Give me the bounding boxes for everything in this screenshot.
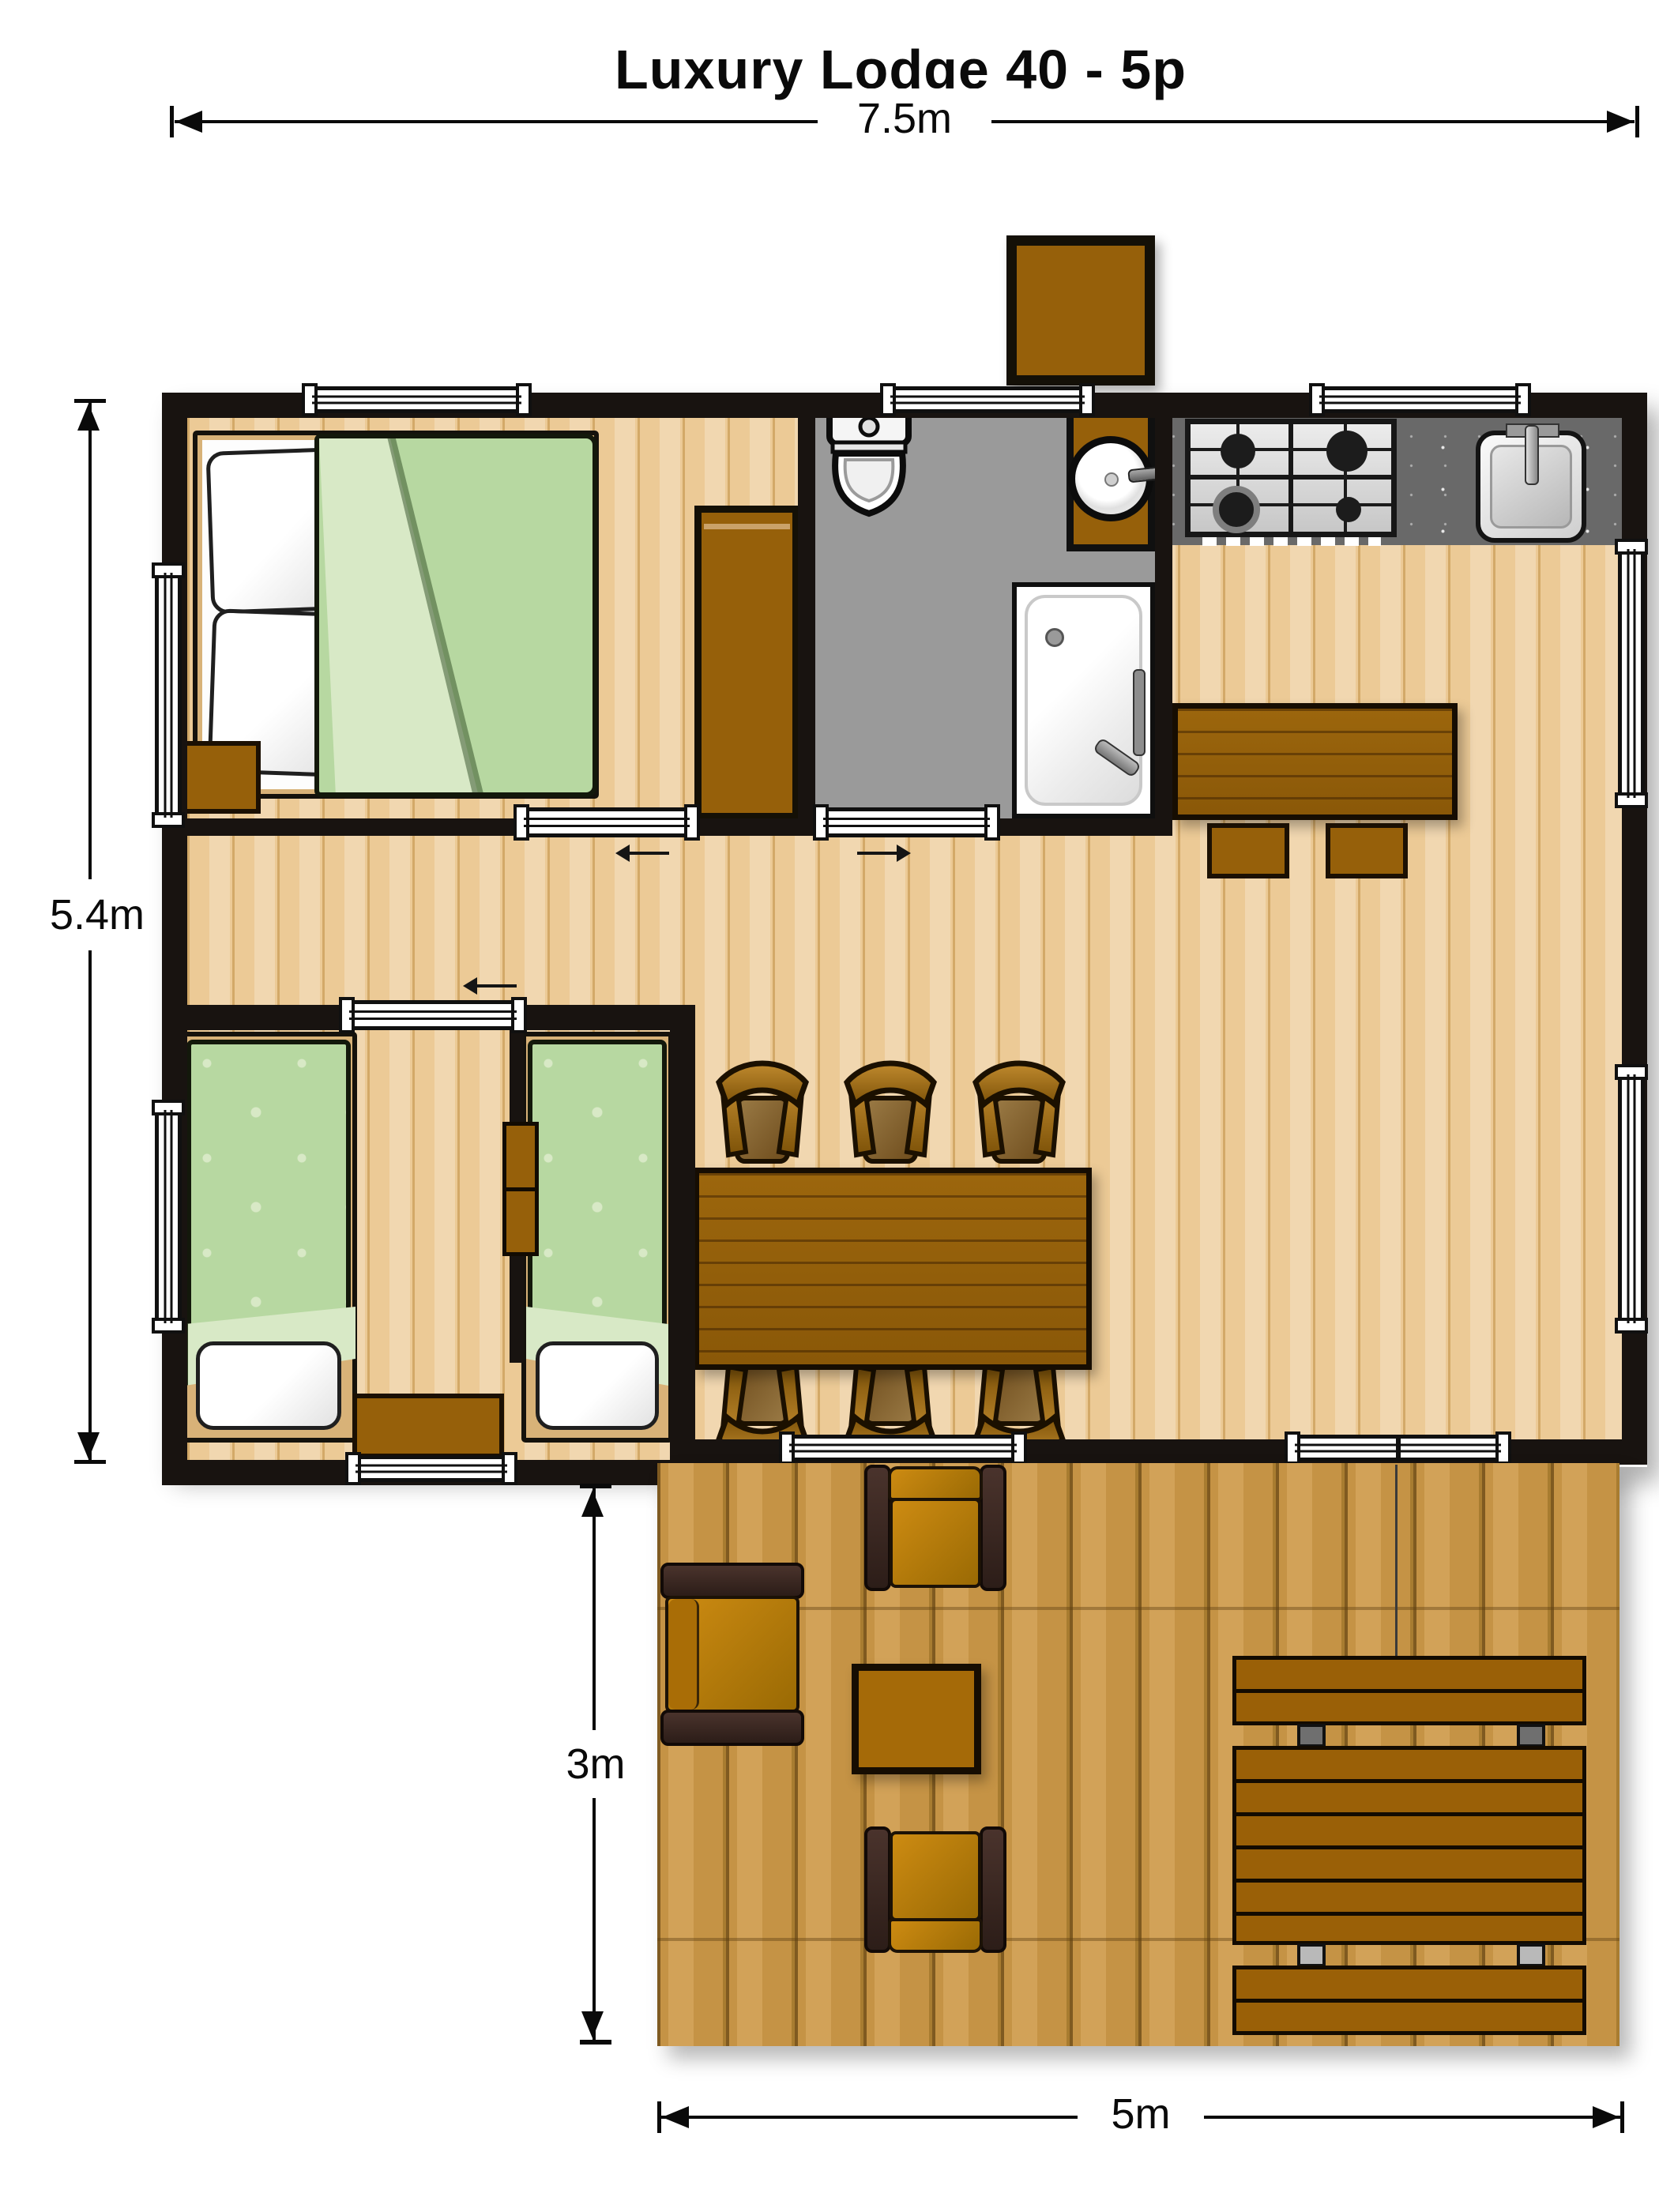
dim-label-depth: 5.4m [30,879,164,950]
window-top-bedroom [308,386,525,413]
sliding-door-twin [345,1000,521,1030]
bench-plank-line [1236,1689,1582,1693]
door-cap [513,804,529,841]
dining-table [694,1168,1092,1370]
duvet-fold [319,438,592,792]
armchair-arm [864,1465,891,1591]
dim-tick [580,1484,611,1488]
stove-knobs [1202,537,1381,546]
picnic-bench [1232,1966,1586,2035]
window-cap [1615,1318,1648,1334]
stove [1185,419,1397,537]
dim-arrow-left [662,2106,689,2128]
wardrobe-shelf-line [704,524,790,529]
window-cap [302,383,318,416]
door-cap [684,804,700,841]
dim-tick [1635,106,1639,137]
sink-faucet-icon [1525,425,1539,485]
dim-arrow-left [175,111,202,133]
dim-label-terrace-width: 5m [1078,2082,1204,2146]
dimension-overall-width: 7.5m [170,100,1639,144]
picnic-table [1232,1746,1586,1945]
pillow [196,1341,341,1430]
stool [1326,823,1408,878]
dim-arrow-right [1593,2106,1619,2128]
window-cap [1615,792,1648,808]
sofa-backrest [668,1599,699,1710]
wardrobe [694,506,799,820]
shower-drain [1045,628,1064,647]
duvet [314,434,597,797]
picnic-bracket [1297,1943,1326,1967]
window-cap [1309,383,1325,416]
stove-burner [1213,486,1260,533]
window-cap [880,383,896,416]
window-cap [1011,1431,1027,1465]
dim-arrow-right [1607,111,1634,133]
dining-chair [968,1051,1070,1169]
floorplan-canvas: Luxury Lodge 40 - 5p 7.5m 5.4m [0,0,1659,2212]
stove-burner [1221,434,1255,468]
shower [1012,582,1155,818]
bathroom-wall-left [798,418,815,836]
window-cap [1079,383,1095,416]
pillow [536,1341,659,1430]
window-cap [152,1318,185,1334]
dining-chair [711,1051,814,1169]
shower-tray [1025,595,1142,806]
bathroom-wall-right [1155,418,1172,836]
armchair-arm [980,1465,1006,1591]
door-arrow-bedroom [628,852,669,855]
twin-room-wall-right [670,1005,695,1460]
door-cap [984,804,1000,841]
duvet [528,1040,667,1334]
door-cap [511,997,527,1033]
toilet [825,404,913,521]
armchair-seat [890,1498,981,1588]
window-cap [152,812,185,828]
stove-burner [1326,431,1367,472]
window-left-bedroom [155,569,182,822]
window-left-twin [155,1106,182,1327]
dining-chair [839,1051,942,1169]
dimension-overall-depth: 5.4m [71,399,134,1464]
patio-door-track-line [1395,1465,1398,1678]
terrace-side-table [852,1664,981,1774]
window-cap [1495,1431,1511,1465]
door-cap [339,997,355,1033]
door-arrow-bathroom [857,852,898,855]
dimension-terrace-width: 5m [657,2095,1624,2139]
armchair-back [888,1466,983,1501]
dim-arrow-down [77,1432,100,1459]
window-right-kitchen [1618,545,1645,802]
armchair-arm [980,1826,1006,1953]
picnic-bench [1232,1656,1586,1725]
window-cap [779,1431,795,1465]
window-cap [152,1100,185,1115]
dimension-terrace-depth: 3m [580,1484,624,2045]
twin-nightstand [352,1394,504,1458]
picnic-bracket [1517,1724,1545,1747]
window-cap [516,383,532,416]
window-bottom-living [785,1435,1021,1461]
cabinet-divider [506,1187,535,1191]
sofa-armrest [660,1710,804,1746]
nightstand [175,741,261,814]
bench-plank-line [1236,1999,1582,2003]
dim-label-width: 7.5m [818,88,991,149]
basin-drain [1104,472,1119,487]
picnic-bracket [1297,1724,1326,1747]
window-bottom-twin [352,1455,511,1482]
window-top-kitchen [1315,386,1525,413]
window-cap [152,562,185,578]
dim-tick [170,106,174,137]
bar-table [1172,703,1458,820]
shower-rail-icon [1133,669,1145,756]
dim-label-terrace-depth: 3m [548,1730,643,1798]
single-bed-left [180,1032,357,1443]
door-cap [813,804,829,841]
sliding-door-bedroom [520,807,694,837]
stove-grate-line [1191,475,1391,480]
picnic-bracket [1517,1943,1545,1967]
partition-cabinet [502,1122,539,1256]
sliding-door-bathroom [819,807,994,837]
dim-arrow-up [77,404,100,431]
sofa-armrest [660,1563,804,1599]
patio-door [1291,1435,1505,1461]
duvet [186,1040,351,1334]
armchair-arm [864,1826,891,1953]
window-cap [1615,1064,1648,1080]
window-right-living [1618,1070,1645,1327]
entry-step [1006,235,1155,386]
dim-arrow-up [581,1490,604,1517]
window-cap [345,1452,361,1485]
armchair-seat [890,1831,981,1921]
window-top-bathroom [886,386,1089,413]
stove-burner [1336,497,1361,522]
stool [1207,823,1289,878]
window-cap [1285,1431,1300,1465]
window-cap [1615,539,1648,555]
patio-door-mullion [1396,1435,1401,1461]
armchair-back [888,1918,983,1953]
dim-tick [1620,2101,1624,2133]
dim-arrow-down [581,2011,604,2038]
dim-tick [580,2040,611,2045]
window-cap [502,1452,517,1485]
single-bed-right [521,1032,673,1443]
door-arrow-twin [476,984,517,987]
window-cap [1515,383,1531,416]
